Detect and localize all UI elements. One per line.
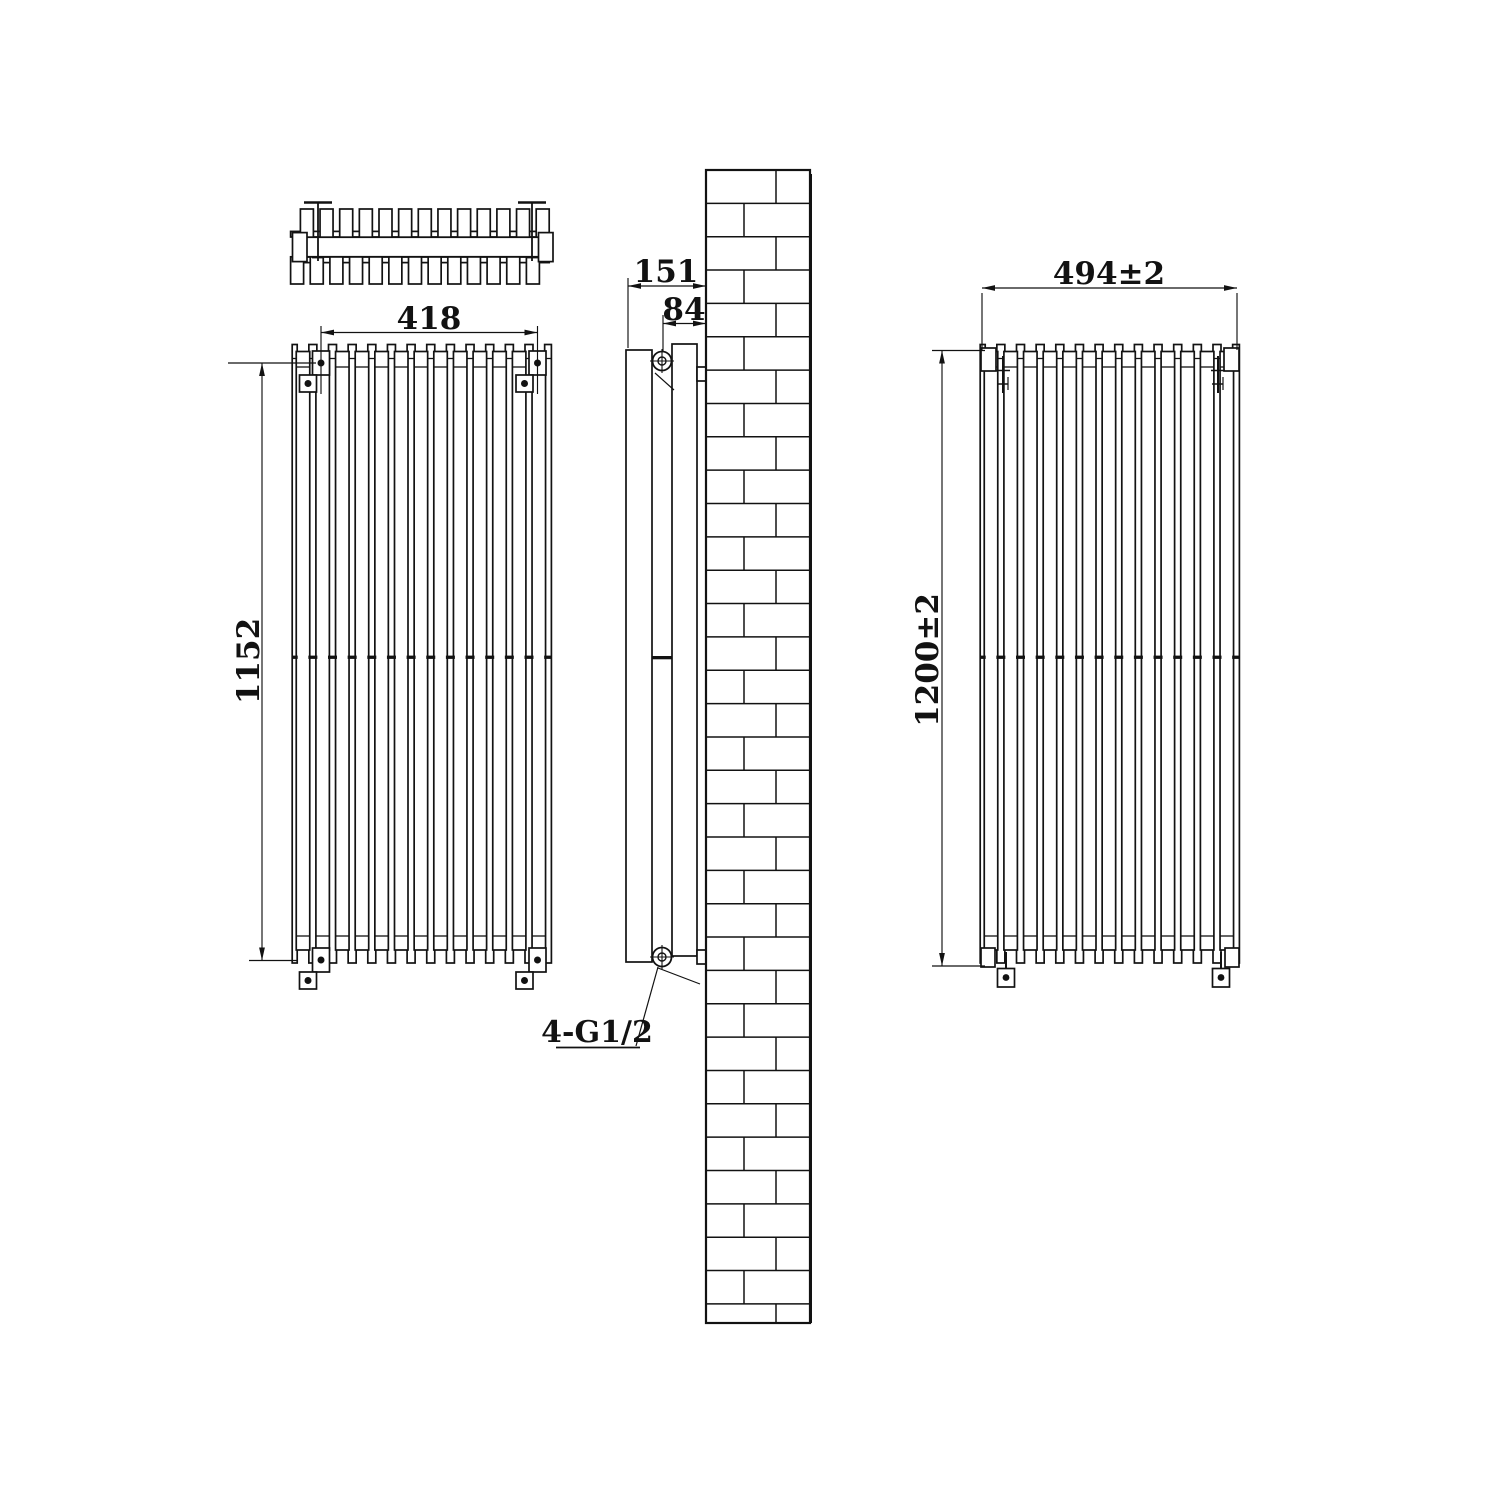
mid-joint-tick [1154,656,1163,659]
mid-joint-tick [426,656,435,659]
front-tube [1024,352,1038,951]
end-cap [981,348,996,371]
front-tube [414,352,428,951]
mid-joint-tick [348,656,357,659]
front-tube [984,352,998,951]
mid-joint-tick [308,656,317,659]
dim-label-overall-width: 494±2 [1053,256,1165,292]
mid-joint-tick [1095,656,1104,659]
back-row-tube [418,209,431,238]
back-row-tube [359,209,372,238]
drawing-sheet: 418 1152 151 84 494±2 1200±2 4-G1/2 [0,0,1500,1500]
front-tube [1083,352,1097,951]
mid-joint-tick [1114,656,1123,659]
front-column [626,350,652,962]
front-view [292,345,551,990]
front-tube [1063,352,1077,951]
front-tube [1161,352,1175,951]
front-row-tube [526,257,539,284]
back-row-tube [517,209,530,238]
front-row-tube [389,257,402,284]
bracket-hole [521,380,528,387]
front-tube [296,352,310,951]
end-cap [981,948,995,967]
mid-joint-tick [466,656,475,659]
front-tube [395,352,409,951]
mid-joint-tick [292,656,298,659]
front-tube [512,352,526,951]
mid-joint-tick [1055,656,1064,659]
front-row-tube [330,257,343,284]
front-row-tube [350,257,363,284]
front-row-tube [409,257,422,284]
dim-label-depth: 151 [634,254,699,290]
front-row-tube [369,257,382,284]
front-tube [375,352,389,951]
bracket-hole [1218,974,1225,981]
bracket-hole [305,977,312,984]
radiator-technical-drawing: 418 1152 151 84 494±2 1200±2 4-G1/2 [0,0,1500,1500]
wall-tab [697,367,706,381]
front-tube [532,352,546,951]
bracket-hole [318,957,325,964]
front-row-tube [467,257,480,284]
front-tube [1200,352,1214,951]
mid-joint-tick [387,656,396,659]
wall-tab [697,950,706,964]
back-row-tube [379,209,392,238]
mid-joint-tick [652,656,672,659]
brick-wall [706,170,812,1323]
dim-label-bracket-width: 418 [397,301,462,337]
mid-joint-tick [544,656,551,659]
front-tube [1004,352,1018,951]
bracket-hole [1003,974,1010,981]
manifold [296,237,549,257]
back-column [672,344,697,956]
rear-view [980,345,1239,988]
front-row-tube [310,257,323,284]
front-tube [1141,352,1155,951]
front-tube [493,352,507,951]
mid-joint-tick [1173,656,1182,659]
back-row-tube [320,209,333,238]
front-tube [355,352,369,951]
mid-joint-tick [1036,656,1045,659]
mid-joint-tick [980,656,986,659]
mid-joint-tick [1213,656,1222,659]
back-row-tube [497,209,510,238]
wall-outline [706,170,810,1323]
mid-joint-tick [328,656,337,659]
bracket-hole [534,957,541,964]
dim-label-bracket-height: 1152 [231,618,267,704]
connection-thread-label: 4-G1/2 [541,1015,653,1050]
front-tube [453,352,467,951]
mid-joint-tick [996,656,1005,659]
front-tube [1102,352,1116,951]
back-row-tube [438,209,451,238]
front-tube [1122,352,1136,951]
mid-joint-tick [1016,656,1025,659]
back-row-tube [477,209,490,238]
bracket-hole [521,977,528,984]
mid-joint-tick [367,656,376,659]
dim-label-connection-offset: 84 [662,292,705,328]
front-tube [434,352,448,951]
front-row-tube [487,257,500,284]
manifold-end-cap [293,233,308,262]
mid-joint-tick [525,656,534,659]
front-tube [1181,352,1195,951]
mid-joint-tick [1134,656,1143,659]
front-row-tube [428,257,441,284]
bracket-hole [305,380,312,387]
front-tube [1220,352,1234,951]
end-cap [1224,348,1239,371]
front-row-tube [448,257,461,284]
manifold-end-cap [539,233,554,262]
mid-joint-tick [446,656,455,659]
front-tube [316,352,330,951]
front-tube [336,352,350,951]
back-row-tube [340,209,353,238]
back-row-tube [458,209,471,238]
front-tube [1043,352,1057,951]
mid-joint-tick [1232,656,1239,659]
mid-joint-tick [1193,656,1202,659]
mid-joint-tick [505,656,514,659]
front-tube [473,352,487,951]
mid-joint-tick [485,656,494,659]
dim-label-overall-height: 1200±2 [910,593,946,727]
front-row-tube [507,257,520,284]
mid-joint-tick [407,656,416,659]
end-cap [1225,948,1239,967]
mid-joint-tick [1075,656,1084,659]
back-row-tube [399,209,412,238]
